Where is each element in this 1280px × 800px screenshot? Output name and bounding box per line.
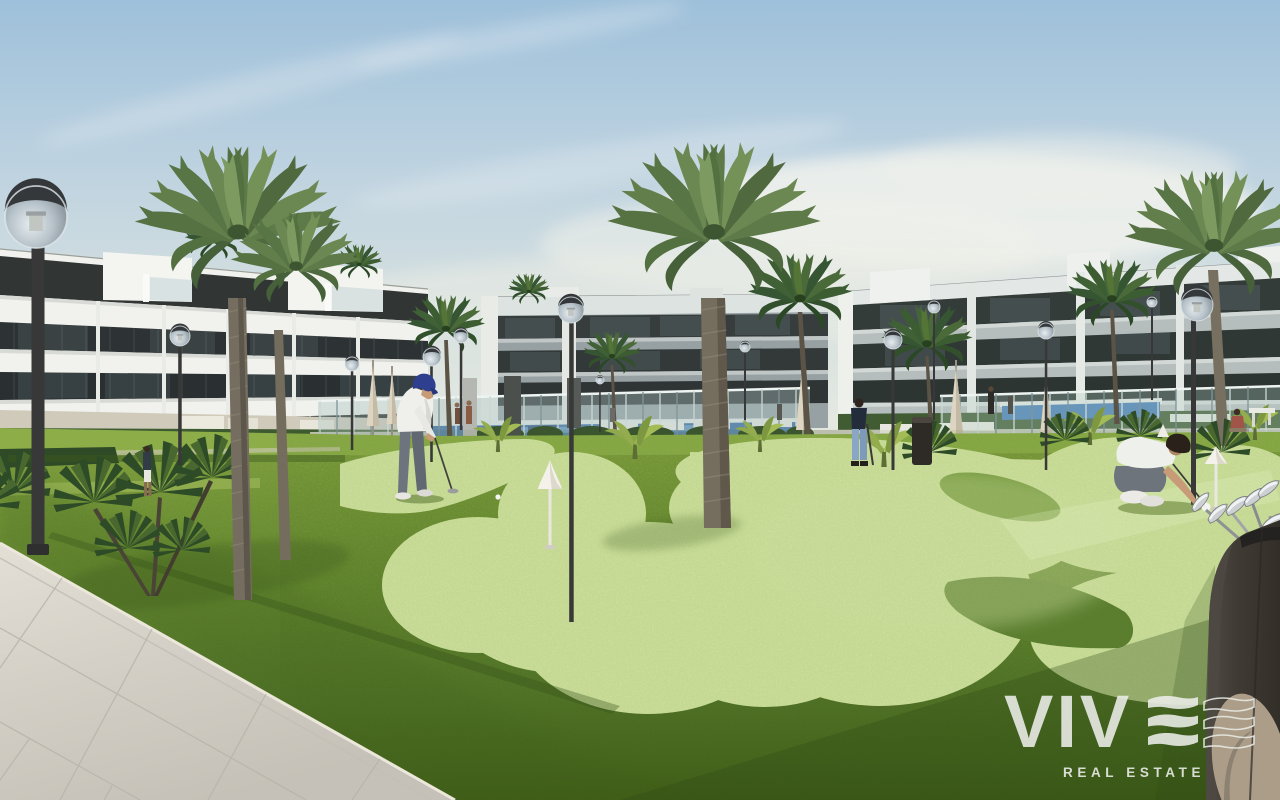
svg-text:VIV: VIV bbox=[1004, 680, 1132, 763]
svg-text:REAL ESTATE: REAL ESTATE bbox=[1063, 765, 1205, 780]
